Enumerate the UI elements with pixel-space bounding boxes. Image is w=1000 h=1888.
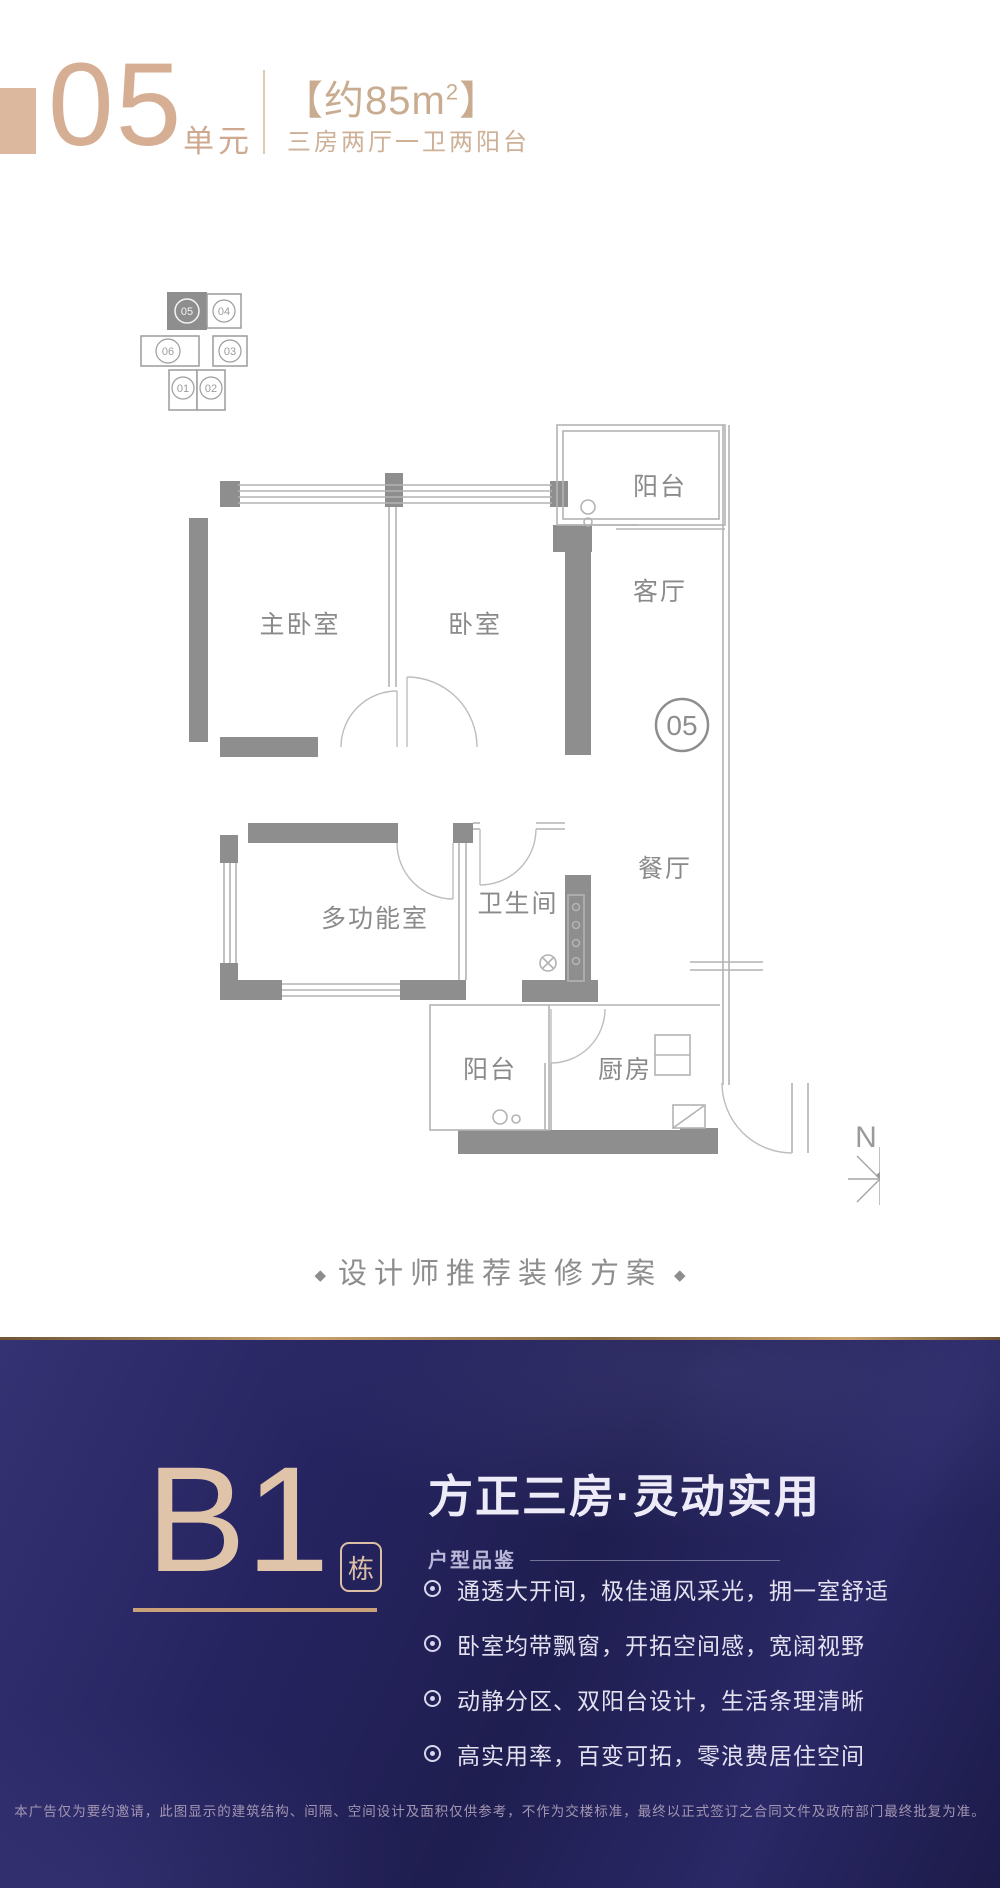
- subhead-label: 户型品鉴: [428, 1544, 516, 1573]
- area-superscript: 2: [446, 80, 459, 105]
- building-info-section: B1 栋 方正三房·灵动实用 户型品鉴 通透大开间，极佳通风采光，拥一室舒适 卧…: [0, 1340, 1000, 1888]
- feature-bullet-dot: [430, 1751, 435, 1756]
- feature-bullet-icon: [424, 1635, 441, 1652]
- room-label-living: 客厅: [633, 578, 687, 606]
- header-accent-block: [0, 88, 36, 154]
- diamond-icon: ◆: [302, 1267, 338, 1284]
- plan-unit-badge: 05: [656, 699, 708, 751]
- room-label-master-bedroom: 主卧室: [259, 611, 340, 639]
- feature-text: 高实用率，百变可拓，零浪费居住空间: [457, 1737, 865, 1771]
- feature-text: 卧室均带飘窗，开拓空间感，宽阔视野: [457, 1627, 865, 1661]
- diamond-icon: ◆: [662, 1267, 698, 1284]
- keyplan-unit-04: 04: [207, 294, 241, 328]
- plan-caption-text: 设计师推荐装修方案: [338, 1258, 662, 1290]
- feature-item: 通透大开间，极佳通风采光，拥一室舒适: [424, 1576, 844, 1601]
- feature-bullet-dot: [430, 1696, 435, 1701]
- area-label: 【约85m2】: [283, 68, 500, 126]
- room-label-multi-room: 多功能室: [321, 905, 429, 933]
- plan-unit-number: 05: [666, 710, 697, 741]
- keyplan-unit-05: 05: [167, 292, 207, 330]
- feature-item: 卧室均带飘窗，开拓空间感，宽阔视野: [424, 1631, 844, 1656]
- feature-list: 通透大开间，极佳通风采光，拥一室舒适 卧室均带飘窗，开拓空间感，宽阔视野 动静分…: [424, 1576, 844, 1796]
- building-code: B1: [146, 1444, 329, 1594]
- feature-bullet-icon: [424, 1580, 441, 1597]
- room-label-dining: 餐厅: [638, 855, 692, 883]
- room-label-balcony-top: 阳台: [633, 473, 687, 501]
- feature-text: 通透大开间，极佳通风采光，拥一室舒适: [457, 1572, 889, 1606]
- feature-bullet-dot: [430, 1641, 435, 1646]
- building-code-underline: [133, 1608, 377, 1612]
- subhead-row: 户型品鉴: [428, 1544, 780, 1573]
- room-label-kitchen: 厨房: [598, 1056, 652, 1084]
- north-label: N: [855, 1121, 877, 1154]
- unit-suffix: 单元: [183, 116, 253, 161]
- keyplan-unit-label: 05: [181, 306, 193, 318]
- layout-description: 三房两厅一卫两阳台: [287, 122, 530, 157]
- room-label-bathroom: 卫生间: [477, 890, 558, 918]
- feature-text: 动静分区、双阳台设计，生活条理清晰: [457, 1682, 865, 1716]
- plan-thin-walls: [224, 425, 808, 1153]
- keyplan-unit-06: 06: [141, 336, 199, 366]
- subhead-rule: [530, 1560, 780, 1561]
- keyplan-unit-label: 03: [224, 346, 236, 358]
- plan-labels: 阳台 客厅 主卧室 卧室 餐厅 多功能室 卫生间 阳台 厨房: [259, 473, 692, 1084]
- building-suffix-badge: 栋: [340, 1542, 382, 1592]
- feature-item: 动静分区、双阳台设计，生活条理清晰: [424, 1686, 844, 1711]
- feature-bullet-icon: [424, 1745, 441, 1762]
- keyplan-unit-label: 06: [162, 346, 174, 358]
- floor-plan: 阳台 客厅 主卧室 卧室 餐厅 多功能室 卫生间 阳台 厨房 05 N: [160, 395, 880, 1205]
- disclaimer-text: 本广告仅为要约邀请，此图显示的建筑结构、间隔、空间设计及面积仅供参考，不作为交楼…: [0, 1800, 1000, 1820]
- area-close-bracket: 】: [459, 79, 500, 123]
- north-arrow: N: [848, 1121, 880, 1205]
- feature-bullet-icon: [424, 1690, 441, 1707]
- area-text: 【约85m: [283, 79, 446, 123]
- keyplan-unit-03: 03: [213, 336, 247, 366]
- floorplan-ad-page: 05 单元 【约85m2】 三房两厅一卫两阳台 05 04 06: [0, 0, 1000, 1888]
- plan-walls: [189, 473, 718, 1154]
- keyplan-unit-label: 04: [218, 306, 230, 318]
- section-headline: 方正三房·灵动实用: [428, 1460, 821, 1525]
- plan-caption: ◆设计师推荐装修方案◆: [0, 1250, 1000, 1292]
- keyplan-unit-label: 01: [177, 383, 189, 395]
- unit-number: 05: [48, 46, 183, 164]
- header-divider: [263, 70, 265, 154]
- feature-bullet-dot: [430, 1586, 435, 1591]
- feature-item: 高实用率，百变可拓，零浪费居住空间: [424, 1741, 844, 1766]
- room-label-bedroom: 卧室: [448, 611, 502, 639]
- room-label-balcony-bottom: 阳台: [463, 1056, 517, 1084]
- keyplan-unit-label: 02: [205, 383, 217, 395]
